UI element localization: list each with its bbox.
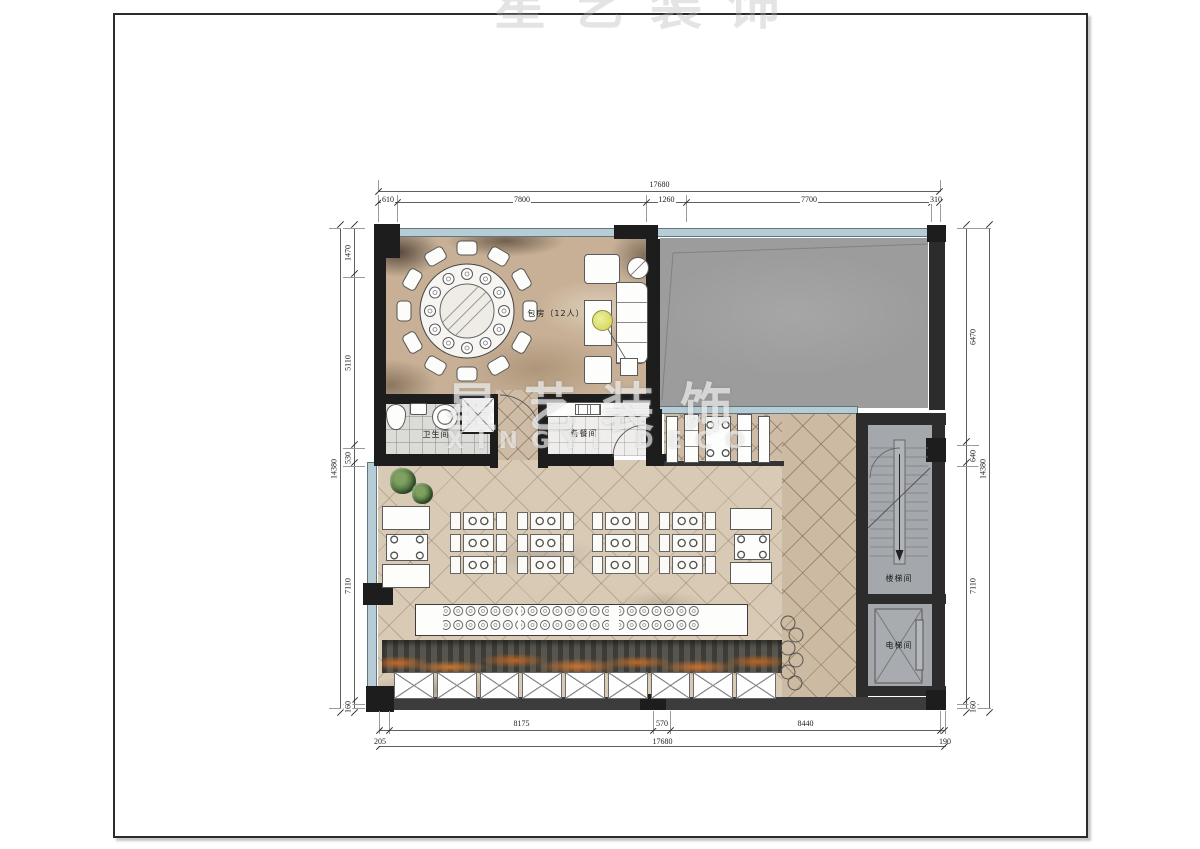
booth-seat [737, 414, 752, 463]
window-mid [652, 406, 858, 414]
dim-segment: 7110 [957, 466, 979, 704]
bench-seat [517, 512, 528, 530]
table-row [517, 512, 574, 530]
dim-label: 160 [344, 700, 353, 714]
sink-icon [410, 403, 427, 415]
display-box [693, 672, 733, 699]
bench-seat [705, 556, 716, 574]
shaft-box [460, 396, 496, 434]
stair-flight [866, 424, 932, 598]
dim-label: 7700 [800, 195, 818, 204]
display-box [437, 672, 477, 699]
dim-label: 640 [969, 449, 978, 463]
bench-seat [592, 512, 603, 530]
dim-segment [940, 711, 946, 734]
dim-label: 8440 [797, 719, 815, 728]
left-booth-table [386, 534, 428, 561]
dim-label: 7800 [513, 195, 531, 204]
dim-segment: 8175 [389, 711, 653, 734]
dim-segment: 14380 [329, 228, 341, 709]
dim-right-segments: 6470 640 7110 160 [957, 228, 979, 709]
label-private-room: 包房（12人） [515, 309, 597, 318]
booth-table-4-seats [705, 416, 731, 462]
left-booth-seat [382, 506, 430, 530]
wall-right-upper [929, 242, 945, 410]
bench-seat [638, 556, 649, 574]
banquet-table [415, 604, 748, 636]
wall-left [374, 238, 386, 460]
bench-seat [638, 534, 649, 552]
window-display-row [394, 672, 776, 699]
stool-circles [780, 615, 806, 693]
table-2-seats [672, 534, 703, 552]
dim-label: 1260 [658, 195, 676, 204]
side-table-round [627, 257, 649, 279]
table-row [517, 556, 574, 574]
wall-restroom-bottom [374, 454, 496, 466]
dim-label: 7110 [969, 577, 978, 595]
display-box [608, 672, 648, 699]
table-row [659, 556, 716, 574]
dim-label: 530 [344, 451, 353, 465]
bench-seat [563, 534, 574, 552]
table-cluster [659, 512, 716, 574]
dim-label: 6470 [969, 328, 978, 346]
table-2-seats [463, 556, 494, 574]
dim-label: 8175 [513, 719, 531, 728]
window-top-left [384, 228, 616, 237]
table-2-seats [530, 534, 561, 552]
table-row [592, 556, 649, 574]
table-2-seats [672, 512, 703, 530]
table-2-seats [530, 556, 561, 574]
square-stool [620, 358, 638, 376]
table-row [592, 512, 649, 530]
bench-seat [496, 556, 507, 574]
floor-plan-page: 包房（12人） 卫生间 备餐间 楼梯间 电梯间 星艺装饰 XINGYI DECO… [0, 0, 1200, 849]
table-row [517, 534, 574, 552]
dim-label: 17680 [649, 180, 671, 189]
table-cluster [450, 512, 507, 574]
bench-seat [517, 556, 528, 574]
table-row [450, 556, 507, 574]
column-top-right [927, 225, 946, 242]
booth-bench [758, 416, 770, 463]
dim-segment: 160 [343, 704, 365, 709]
right-booth-seat [730, 562, 772, 584]
dim-label: 7110 [344, 577, 353, 595]
dim-top-overall: 17680 [378, 180, 941, 192]
dim-label: 17680 [653, 737, 673, 746]
table-row [592, 534, 649, 552]
table-row [659, 534, 716, 552]
table-row [450, 534, 507, 552]
column-bottom-left [366, 686, 394, 712]
dim-segment: 570 [653, 711, 670, 734]
gray-room-crease-lines [660, 238, 928, 408]
table-row [659, 512, 716, 530]
dim-label: 160 [969, 700, 978, 714]
dim-segment: 7800 [397, 195, 646, 222]
dim-left-overall: 14380 [329, 228, 341, 709]
bench-seat [659, 534, 670, 552]
display-box [394, 672, 434, 699]
window-left-wall [367, 462, 377, 698]
armchair-top [584, 254, 620, 284]
bench-seat [705, 534, 716, 552]
display-box [565, 672, 605, 699]
plant-icon [412, 483, 433, 504]
display-box [736, 672, 776, 699]
dim-left-segments: 1470 5110 530 7110 160 [343, 228, 365, 709]
dim-segment: 7700 [686, 195, 931, 222]
bench-seat [659, 556, 670, 574]
dim-segment: 205 17680 190 [379, 737, 946, 747]
dim-segment: 640 [957, 445, 979, 466]
table-row [450, 512, 507, 530]
column-top-mid [614, 225, 658, 239]
dim-label: 205 [374, 737, 386, 746]
bench-seat [517, 534, 528, 552]
table-2-seats [530, 512, 561, 530]
dim-bottom-overall: 205 17680 190 [379, 737, 946, 747]
bench-seat [450, 534, 461, 552]
table-2-seats [605, 556, 636, 574]
dim-label: 5110 [344, 354, 353, 372]
left-booth-seat [382, 564, 430, 588]
bench-seat [592, 556, 603, 574]
booth-bench [666, 416, 678, 463]
bench-seat [450, 512, 461, 530]
bench-seat [563, 556, 574, 574]
dim-right-overall: 14380 [979, 228, 991, 709]
wall-pantry-bottom [538, 454, 614, 466]
washbasin-icon [432, 404, 458, 430]
table-2-seats [463, 512, 494, 530]
planter-shrub-band [382, 640, 782, 673]
label-pantry: 备餐间 [546, 429, 622, 438]
label-stairwell: 楼梯间 [866, 574, 932, 583]
table-2-seats [605, 534, 636, 552]
booth-seat [684, 414, 699, 463]
bench-seat [592, 534, 603, 552]
bench-seat [450, 556, 461, 574]
dim-segment: 310 [931, 195, 941, 222]
double-sink-icon [575, 404, 601, 415]
vestibule-door-arc [498, 394, 542, 438]
table-cluster [517, 512, 574, 574]
dim-label: 570 [655, 719, 669, 728]
column-bottom-right [926, 690, 946, 710]
dim-label: 610 [381, 195, 395, 204]
dim-segment: 160 [957, 704, 979, 709]
dim-segment: 610 [378, 195, 397, 222]
bench-seat [659, 512, 670, 530]
dim-label: 14380 [979, 458, 988, 480]
label-restroom: 卫生间 [404, 430, 468, 439]
dim-segment: 8440 [670, 711, 940, 734]
bench-seat [496, 534, 507, 552]
bench-seat [563, 512, 574, 530]
display-box [480, 672, 520, 699]
bench-seat [638, 512, 649, 530]
dim-segment: 5110 [343, 277, 365, 448]
table-2-seats [463, 534, 494, 552]
dim-segment: 17680 [378, 180, 941, 192]
dim-segment: 14380 [979, 228, 991, 709]
right-booth-seat [730, 508, 772, 530]
display-box [522, 672, 562, 699]
dim-label: 1470 [344, 244, 353, 262]
bench-seat [705, 512, 716, 530]
dim-top-segments: 610 7800 1260 7700 310 [378, 195, 941, 222]
bench-seat [496, 512, 507, 530]
dim-segment: 7110 [343, 466, 365, 704]
table-cluster [592, 512, 649, 574]
armchair-bottom [584, 356, 612, 384]
dim-bottom-segments: 8175 570 8440 [379, 711, 946, 734]
dim-label: 310 [929, 195, 943, 204]
dim-label: 190 [939, 737, 951, 746]
display-box [651, 672, 691, 699]
label-elevator: 电梯间 [866, 641, 932, 650]
table-2-seats [672, 556, 703, 574]
dim-label: 14380 [330, 458, 339, 480]
dim-segment: 6470 [957, 228, 979, 445]
dim-segment: 1470 [343, 228, 365, 277]
right-booth-table [734, 534, 770, 560]
dim-segment: 1260 [646, 195, 686, 222]
table-2-seats [605, 512, 636, 530]
window-top-right [656, 228, 930, 237]
